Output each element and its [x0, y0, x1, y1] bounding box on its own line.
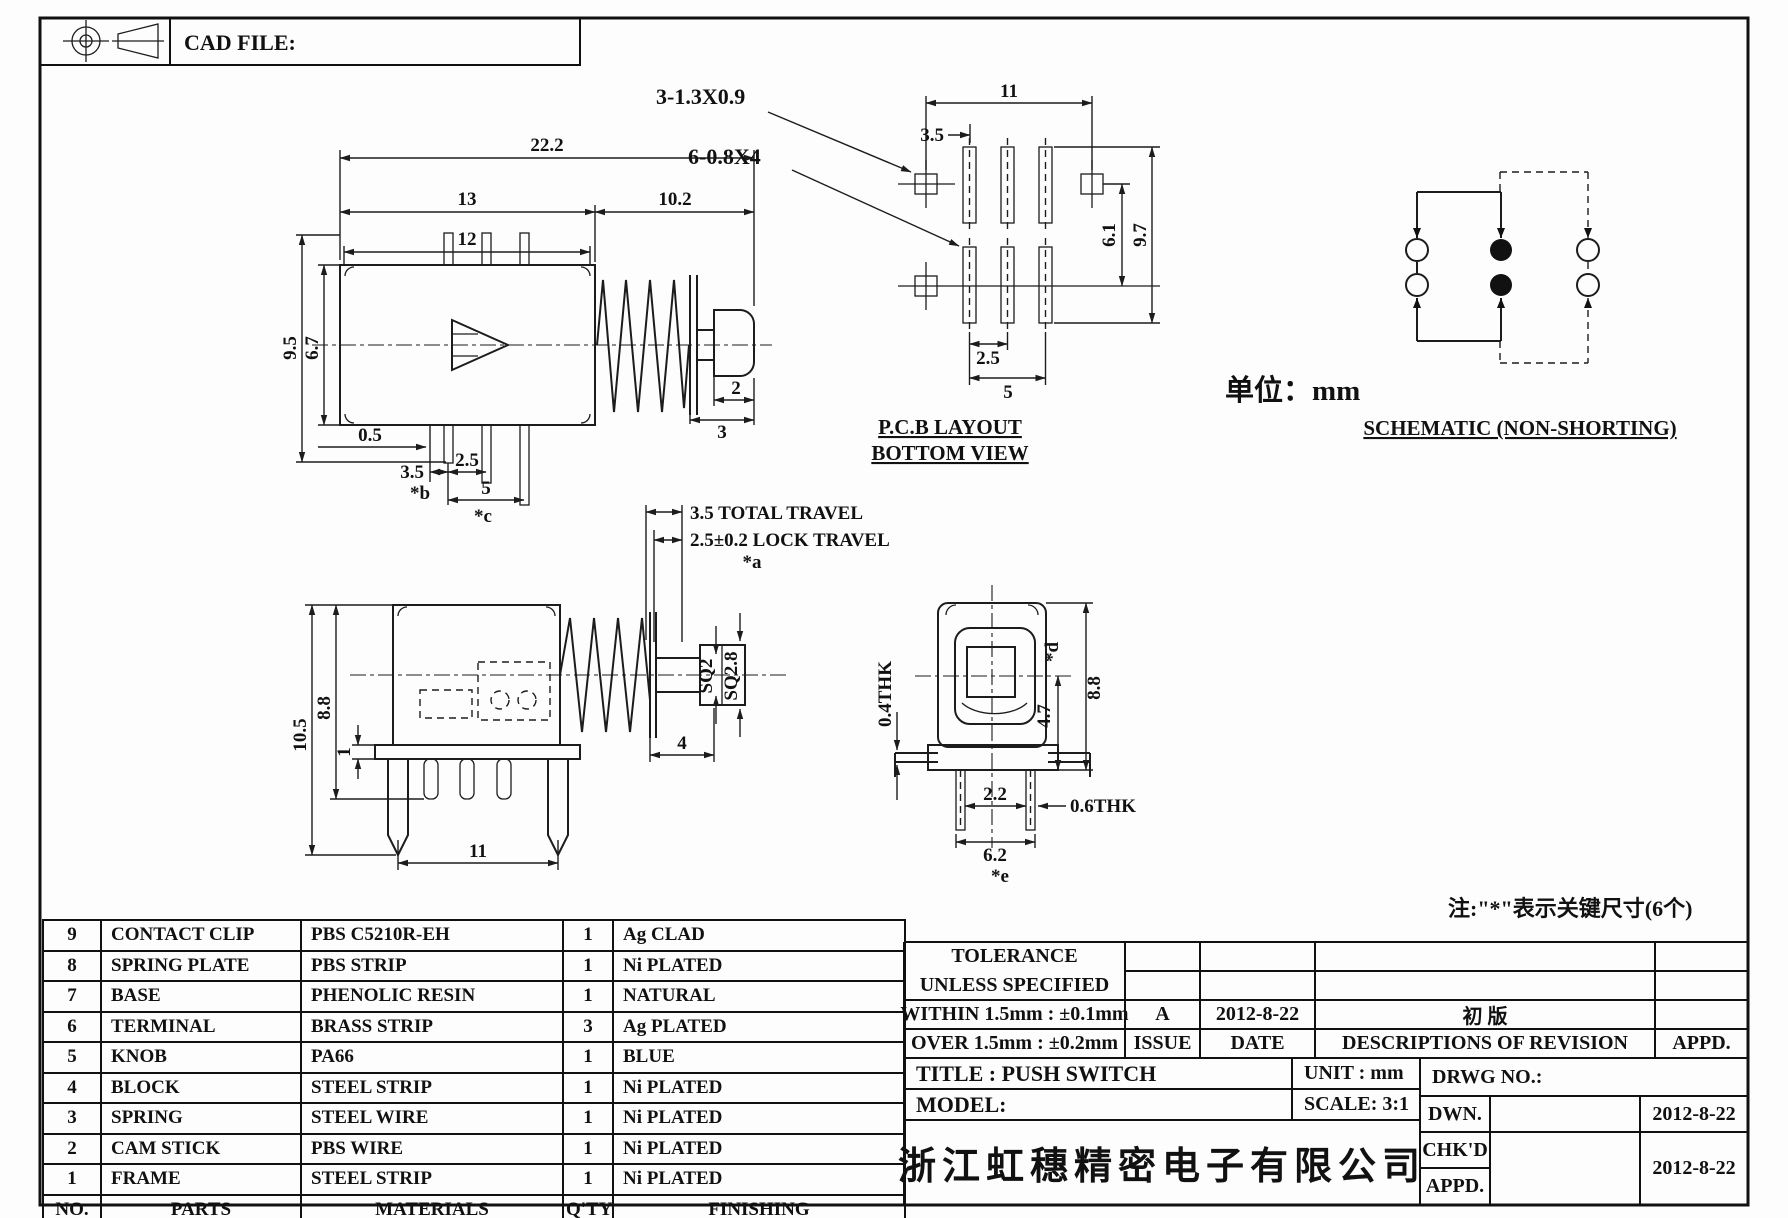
key-dim-d: *d: [1042, 642, 1063, 663]
thickness-label: 0.6THK: [1070, 796, 1136, 817]
dwn-label: DWN.: [1420, 1096, 1490, 1132]
key-dimension-note: 注:"*"表示关键尺寸(6个): [1448, 896, 1692, 921]
table-row: 8SPRING PLATEPBS STRIP1Ni PLATED: [43, 951, 905, 982]
key-dim-a: *a: [743, 552, 763, 573]
drawing-title: TITLE : PUSH SWITCH: [904, 1058, 1304, 1089]
dim-label: 3: [717, 422, 727, 443]
part-name: SPRING PLATE: [101, 951, 301, 982]
appd-label: APPD.: [1420, 1168, 1490, 1204]
revision-description: 初 版: [1315, 1000, 1655, 1029]
key-dim-b: *b: [410, 483, 430, 504]
pcb-layout-view: 11 3.5 6.1 9.7 2.5 5 3-1.3X0.9 6-0.8X4 P…: [656, 81, 1160, 465]
part-no: 6: [43, 1012, 101, 1043]
pcb-caption-line1: P.C.B LAYOUT: [878, 415, 1022, 439]
dim-label: 5: [481, 478, 491, 499]
part-finishing: Ni PLATED: [613, 1134, 905, 1165]
part-material: STEEL STRIP: [301, 1164, 563, 1195]
part-no: 8: [43, 951, 101, 982]
company-name: 浙江虹穗精密电子有限公司: [904, 1120, 1420, 1204]
parts-table: 9CONTACT CLIPPBS C5210R-EH1Ag CLAD 8SPRI…: [42, 919, 906, 1218]
part-material: BRASS STRIP: [301, 1012, 563, 1043]
table-row: 6TERMINALBRASS STRIP3Ag PLATED: [43, 1012, 905, 1043]
part-finishing: BLUE: [613, 1042, 905, 1073]
dim-label: 22.2: [530, 135, 563, 156]
scale-field: SCALE: 3:1: [1292, 1089, 1432, 1120]
lock-travel-label: 2.5±0.2 LOCK TRAVEL: [690, 530, 890, 551]
part-name: KNOB: [101, 1042, 301, 1073]
part-name: BLOCK: [101, 1073, 301, 1104]
dim-label: 1: [334, 747, 355, 757]
travel-view: 3.5 TOTAL TRAVEL 2.5±0.2 LOCK TRAVEL *a …: [290, 503, 890, 870]
part-material: STEEL STRIP: [301, 1073, 563, 1104]
col-header-parts: PARTS: [101, 1195, 301, 1218]
dim-label: 6.1: [1099, 223, 1120, 247]
hole-callout-3: 3-1.3X0.9: [656, 84, 745, 109]
table-row: 9CONTACT CLIPPBS C5210R-EH1Ag CLAD: [43, 920, 905, 951]
dim-label: 2.5: [455, 450, 479, 471]
part-no: 2: [43, 1134, 101, 1165]
dwn-date: 2012-8-22: [1640, 1096, 1748, 1132]
dim-label: 9.5: [280, 336, 301, 360]
unit-field: UNIT : mm: [1292, 1058, 1432, 1089]
col-header-no: NO.: [43, 1195, 101, 1218]
part-material: PHENOLIC RESIN: [301, 981, 563, 1012]
part-qty: 1: [563, 951, 613, 982]
part-name: CONTACT CLIP: [101, 920, 301, 951]
part-no: 3: [43, 1103, 101, 1134]
part-qty: 1: [563, 981, 613, 1012]
issue-header: ISSUE: [1125, 1029, 1200, 1058]
chkd-label: CHK'D: [1420, 1132, 1490, 1168]
col-header-materials: MATERIALS: [301, 1195, 563, 1218]
part-name: BASE: [101, 981, 301, 1012]
dim-label: 4.7: [1034, 704, 1055, 728]
part-material: PBS WIRE: [301, 1134, 563, 1165]
table-row: 7BASEPHENOLIC RESIN1NATURAL: [43, 981, 905, 1012]
unit-note: 单位：mm: [1225, 373, 1360, 407]
col-header-finishing: FINISHING: [613, 1195, 905, 1218]
dim-label: 5: [1003, 382, 1013, 403]
tolerance-title: TOLERANCE: [904, 942, 1125, 971]
part-finishing: NATURAL: [613, 981, 905, 1012]
dim-label: 8.8: [1084, 676, 1105, 700]
key-dim-e: *e: [991, 866, 1009, 887]
dim-label: 6.7: [302, 336, 323, 360]
dim-label: 3.5: [400, 462, 424, 483]
part-finishing: Ni PLATED: [613, 951, 905, 982]
dim-label: 2.2: [983, 784, 1007, 805]
part-qty: 1: [563, 1073, 613, 1104]
part-no: 1: [43, 1164, 101, 1195]
issue-value: A: [1125, 1000, 1200, 1029]
part-name: CAM STICK: [101, 1134, 301, 1165]
part-qty: 1: [563, 920, 613, 951]
part-material: PBS STRIP: [301, 951, 563, 982]
dim-label: SQ2: [696, 659, 717, 694]
table-row: 4BLOCKSTEEL STRIP1Ni PLATED: [43, 1073, 905, 1104]
part-qty: 1: [563, 1042, 613, 1073]
hole-callout-6: 6-0.8X4: [688, 144, 761, 169]
part-no: 4: [43, 1073, 101, 1104]
dim-label: 0.5: [358, 425, 382, 446]
dim-label: 6.2: [983, 845, 1007, 866]
projection-symbol-icon: [63, 20, 164, 62]
key-dim-c: *c: [474, 506, 492, 527]
dim-label: 3.5: [920, 125, 944, 146]
part-name: SPRING: [101, 1103, 301, 1134]
dim-label: 9.7: [1130, 223, 1151, 247]
part-material: PBS C5210R-EH: [301, 920, 563, 951]
chkd-appd-date: 2012-8-22: [1640, 1132, 1748, 1204]
part-qty: 1: [563, 1103, 613, 1134]
dim-label: 10.2: [658, 189, 691, 210]
pcb-caption-line2: BOTTOM VIEW: [871, 441, 1028, 465]
part-no: 9: [43, 920, 101, 951]
drwg-no-field: DRWG NO.:: [1420, 1058, 1760, 1096]
thickness-label: 0.4THK: [875, 661, 896, 727]
date-header: DATE: [1200, 1029, 1315, 1058]
table-row: 1FRAMESTEEL STRIP1Ni PLATED: [43, 1164, 905, 1195]
table-row: 5KNOBPA661BLUE: [43, 1042, 905, 1073]
front-view: 0.4THK *d 4.7 8.8 2.2 0.6THK 6.2 *e: [875, 585, 1136, 887]
dim-label: 8.8: [314, 696, 335, 720]
dim-label: 2.5: [976, 348, 1000, 369]
part-material: STEEL WIRE: [301, 1103, 563, 1134]
part-name: TERMINAL: [101, 1012, 301, 1043]
tolerance-subtitle: UNLESS SPECIFIED: [904, 971, 1125, 1000]
tolerance-within: WITHIN 1.5mm : ±0.1mm: [904, 1000, 1125, 1029]
dim-label: 12: [458, 229, 477, 250]
dim-label: 2: [731, 378, 741, 399]
part-no: 7: [43, 981, 101, 1012]
table-header-row: NO.PARTSMATERIALSQ'TYFINISHING: [43, 1195, 905, 1218]
col-header-qty: Q'TY: [563, 1195, 613, 1218]
issue-date-value: 2012-8-22: [1200, 1000, 1315, 1029]
drawing-sheet: CAD FILE: 22.2 13 10.: [0, 0, 1788, 1218]
part-finishing: Ni PLATED: [613, 1103, 905, 1134]
side-view: 22.2 13 10.2 12 9.5 6.7 0.5 3.5 *b 2.5 5…: [280, 135, 772, 527]
dim-label: SQ2.8: [721, 651, 742, 700]
dim-label: 10.5: [290, 718, 311, 751]
model-field: MODEL:: [904, 1089, 1304, 1120]
part-qty: 1: [563, 1134, 613, 1165]
part-finishing: Ni PLATED: [613, 1164, 905, 1195]
part-finishing: Ag CLAD: [613, 920, 905, 951]
revision-header: DESCRIPTIONS OF REVISION: [1315, 1029, 1655, 1058]
part-material: PA66: [301, 1042, 563, 1073]
appd-column-header: APPD.: [1655, 1029, 1748, 1058]
part-qty: 3: [563, 1012, 613, 1043]
part-qty: 1: [563, 1164, 613, 1195]
dim-label: 11: [1000, 81, 1018, 102]
dim-label: 11: [469, 841, 487, 862]
table-row: 2CAM STICKPBS WIRE1Ni PLATED: [43, 1134, 905, 1165]
schematic-caption: SCHEMATIC (NON-SHORTING): [1363, 416, 1676, 440]
total-travel-label: 3.5 TOTAL TRAVEL: [690, 503, 863, 524]
part-name: FRAME: [101, 1164, 301, 1195]
tolerance-over: OVER 1.5mm : ±0.2mm: [904, 1029, 1125, 1058]
part-finishing: Ag PLATED: [613, 1012, 905, 1043]
part-finishing: Ni PLATED: [613, 1073, 905, 1104]
schematic-view: SCHEMATIC (NON-SHORTING): [1363, 172, 1676, 440]
part-no: 5: [43, 1042, 101, 1073]
table-row: 3SPRINGSTEEL WIRE1Ni PLATED: [43, 1103, 905, 1134]
cad-file-label: CAD FILE:: [184, 30, 296, 55]
dim-label: 13: [458, 189, 477, 210]
dim-label: 4: [677, 733, 687, 754]
